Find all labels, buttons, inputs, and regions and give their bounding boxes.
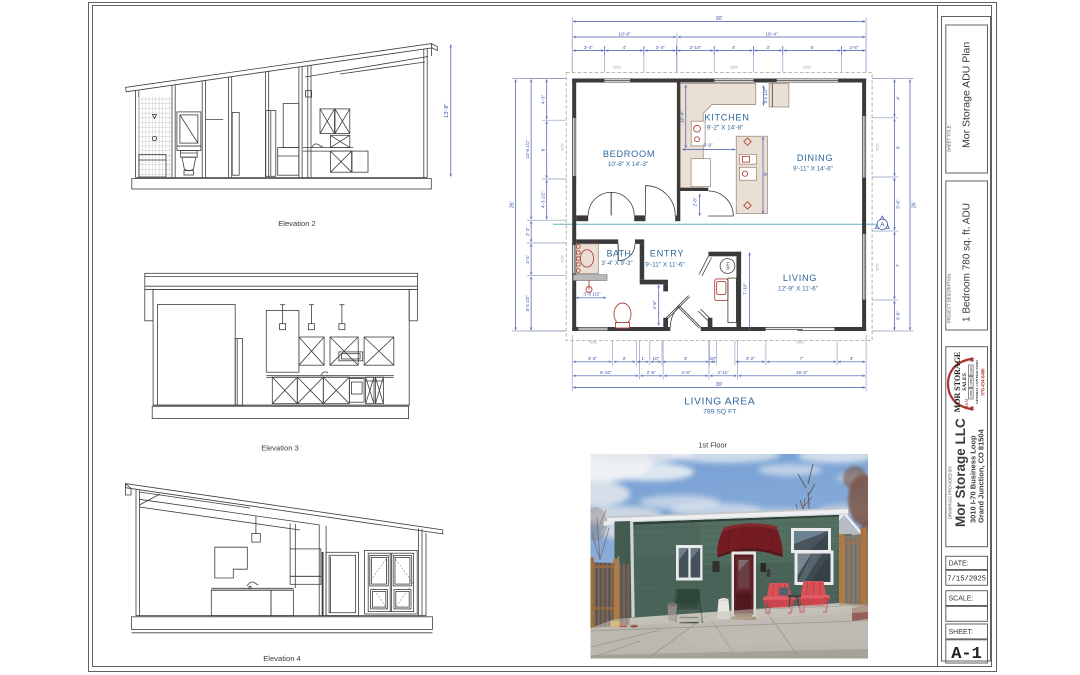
svg-text:SHEET:: SHEET:	[949, 629, 974, 636]
svg-text:3'-4": 3'-4"	[584, 45, 594, 50]
svg-text:970-434-6486: 970-434-6486	[981, 368, 986, 396]
svg-text:5'-9": 5'-9"	[703, 142, 713, 147]
svg-text:9'-11" X 11'-6": 9'-11" X 11'-6"	[645, 262, 684, 269]
svg-text:30': 30'	[716, 382, 723, 388]
svg-text:789 SQ FT: 789 SQ FT	[703, 409, 736, 416]
svg-text:DINING: DINING	[797, 153, 833, 163]
svg-text:3'-4": 3'-4"	[525, 255, 530, 264]
svg-text:Elevation 3: Elevation 3	[261, 444, 299, 453]
svg-text:DATE:: DATE:	[949, 561, 969, 568]
svg-text:SALES: SALES	[962, 373, 968, 391]
svg-text:7/15/2025: 7/15/2025	[947, 576, 986, 584]
svg-text:10'-8": 10'-8"	[618, 31, 631, 37]
svg-text:2': 2'	[623, 356, 627, 361]
svg-text:LIVING: LIVING	[783, 273, 817, 283]
svg-text:10'-4": 10'-4"	[679, 111, 684, 123]
svg-text:Elevation 2: Elevation 2	[278, 219, 316, 228]
svg-text:WH: WH	[726, 262, 731, 270]
svg-text:3050: 3050	[561, 143, 565, 151]
svg-text:4'-8": 4'-8"	[681, 370, 691, 375]
svg-text:8': 8'	[763, 172, 768, 176]
svg-text:26': 26'	[510, 201, 516, 208]
svg-text:6': 6'	[541, 148, 546, 152]
svg-text:BATH: BATH	[607, 249, 632, 259]
svg-text:3050: 3050	[876, 143, 880, 151]
svg-text:6': 6'	[810, 45, 814, 50]
svg-text:2'-3": 2'-3"	[525, 227, 530, 236]
svg-text:1st Floor: 1st Floor	[698, 440, 727, 449]
svg-text:30': 30'	[716, 16, 723, 22]
svg-text:ENTRY: ENTRY	[650, 249, 684, 259]
svg-text:3050: 3050	[803, 65, 811, 69]
svg-text:12'-9" X 11'-6": 12'-9" X 11'-6"	[778, 286, 818, 293]
svg-text:6': 6'	[896, 146, 901, 150]
svg-text:DRAWINGS PROVIDED BY:: DRAWINGS PROVIDED BY:	[948, 465, 953, 519]
svg-text:A: A	[880, 222, 885, 229]
svg-text:3'-6": 3'-6"	[896, 311, 901, 321]
svg-text:SCALE:: SCALE:	[949, 596, 974, 603]
svg-text:3'-0 1/2": 3'-0 1/2"	[583, 291, 600, 296]
svg-text:4'-3": 4'-3"	[541, 94, 546, 104]
svg-text:3050: 3050	[561, 255, 565, 263]
svg-text:9'-2" X 14'-8": 9'-2" X 14'-8"	[707, 125, 744, 132]
svg-text:Elevation 4: Elevation 4	[263, 654, 301, 663]
svg-text:10": 10"	[653, 356, 660, 361]
svg-text:3050: 3050	[730, 65, 738, 69]
svg-text:6'-10": 6'-10"	[600, 370, 612, 375]
svg-text:1 Bedroom 780 sq. ft. ADU: 1 Bedroom 780 sq. ft. ADU	[962, 203, 973, 322]
svg-text:3'-10": 3'-10"	[690, 45, 702, 50]
svg-text:3050: 3050	[876, 263, 880, 271]
svg-text:7': 7'	[896, 264, 901, 268]
svg-text:5'-6": 5'-6"	[896, 199, 901, 209]
svg-text:13'-8": 13'-8"	[444, 104, 450, 118]
svg-text:2'-5": 2'-5"	[647, 370, 657, 375]
svg-text:3': 3'	[850, 356, 854, 361]
svg-text:4': 4'	[896, 96, 901, 100]
svg-text:Grand Junction, CO 81504: Grand Junction, CO 81504	[977, 428, 986, 523]
svg-text:10'-8" X 14'-3": 10'-8" X 14'-3"	[608, 161, 648, 168]
svg-text:CABINS: CABINS	[970, 377, 973, 387]
svg-text:GENERAL CONTRACTORS: GENERAL CONTRACTORS	[975, 360, 979, 404]
svg-text:3'-4": 3'-4"	[656, 45, 666, 50]
svg-text:3'-2": 3'-2"	[746, 356, 756, 361]
svg-text:4': 4'	[732, 45, 736, 50]
svg-text:3': 3'	[766, 45, 770, 50]
svg-text:BEDROOM: BEDROOM	[603, 149, 655, 159]
svg-text:10": 10"	[710, 356, 717, 361]
svg-text:4'-3 1/2": 4'-3 1/2"	[541, 191, 546, 208]
svg-text:4'-6": 4'-6"	[652, 300, 657, 310]
svg-text:KITCHEN: KITCHEN	[704, 113, 749, 123]
svg-text:7': 7'	[800, 356, 804, 361]
svg-text:PROJECT DESCRIPTION:: PROJECT DESCRIPTION:	[947, 273, 952, 323]
svg-text:2'-8": 2'-8"	[693, 197, 698, 207]
svg-text:SHEET TITLE:: SHEET TITLE:	[947, 124, 952, 152]
svg-text:Mor Storage ADU Plan: Mor Storage ADU Plan	[961, 42, 973, 148]
svg-text:MOR STORAGE: MOR STORAGE	[953, 352, 962, 413]
svg-text:3'-4" X 9'-3": 3'-4" X 9'-3"	[601, 261, 632, 267]
svg-text:Mor Storage LLC: Mor Storage LLC	[953, 418, 968, 527]
svg-text:4': 4'	[623, 45, 627, 50]
svg-text:BARNS: BARNS	[970, 365, 973, 374]
svg-text:14'-6 1/2": 14'-6 1/2"	[525, 139, 530, 159]
svg-text:3050: 3050	[589, 341, 597, 345]
svg-text:15'-2": 15'-2"	[796, 370, 808, 375]
svg-text:3': 3'	[684, 356, 688, 361]
svg-text:26': 26'	[912, 201, 918, 208]
svg-text:3050: 3050	[613, 65, 621, 69]
svg-text:9'-11" X 14'-8": 9'-11" X 14'-8"	[793, 166, 833, 173]
svg-text:4'-3": 4'-3"	[588, 356, 598, 361]
svg-text:A-1: A-1	[951, 645, 982, 664]
svg-text:2'-11": 2'-11"	[718, 370, 730, 375]
svg-text:3050: 3050	[796, 341, 804, 345]
svg-text:SHEDS: SHEDS	[970, 389, 973, 398]
svg-text:7'-10": 7'-10"	[743, 283, 748, 295]
svg-text:19'-4": 19'-4"	[765, 31, 778, 37]
svg-text:M&M: M&M	[964, 398, 969, 409]
svg-text:5'-5 1/2": 5'-5 1/2"	[525, 295, 530, 312]
svg-text:5'4 1/2": 5'4 1/2"	[763, 87, 768, 103]
svg-text:2'-6": 2'-6"	[849, 45, 859, 50]
svg-text:1': 1'	[641, 356, 645, 361]
svg-text:LIVING AREA: LIVING AREA	[684, 397, 755, 408]
